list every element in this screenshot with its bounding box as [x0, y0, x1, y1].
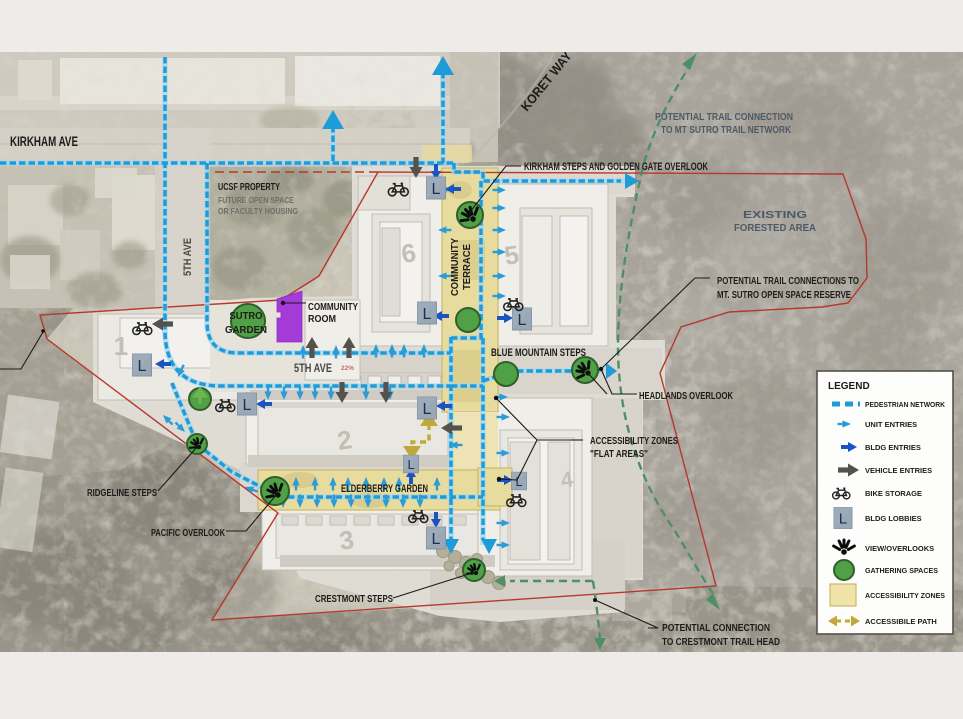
svg-text:UCSF PROPERTY: UCSF PROPERTY: [218, 181, 280, 193]
svg-text:HEADLANDS OVERLOOK: HEADLANDS OVERLOOK: [639, 390, 733, 402]
svg-text:BIKE STORAGE: BIKE STORAGE: [865, 489, 922, 498]
svg-text:OR FACULTY HOUSING: OR FACULTY HOUSING: [218, 206, 298, 216]
svg-text:GARDEN: GARDEN: [225, 324, 267, 336]
svg-text:KIRKHAM AVE: KIRKHAM AVE: [10, 134, 78, 149]
svg-text:POTENTIAL TRAIL CONNECTIONS TO: POTENTIAL TRAIL CONNECTIONS TO: [717, 275, 859, 287]
svg-text:GATHERING SPACES: GATHERING SPACES: [865, 566, 938, 575]
svg-text:MT. SUTRO OPEN SPACE RESERVE: MT. SUTRO OPEN SPACE RESERVE: [717, 289, 851, 301]
svg-text:1: 1: [114, 331, 128, 361]
svg-text:UNIT ENTRIES: UNIT ENTRIES: [865, 420, 917, 429]
svg-text:POTENTIAL CONNECTION: POTENTIAL CONNECTION: [662, 623, 770, 634]
svg-text:5TH AVE: 5TH AVE: [182, 238, 194, 276]
svg-text:VIEW/OVERLOOKS: VIEW/OVERLOOKS: [865, 544, 934, 553]
svg-text:FUTURE OPEN SPACE: FUTURE OPEN SPACE: [218, 195, 294, 205]
svg-text:ELDERBERRY GARDEN: ELDERBERRY GARDEN: [341, 483, 428, 495]
svg-text:5TH AVE: 5TH AVE: [294, 361, 332, 375]
svg-text:BLUE MOUNTAIN STEPS: BLUE MOUNTAIN STEPS: [491, 347, 586, 359]
svg-text:KIRKHAM STEPS AND GOLDEN GATE: KIRKHAM STEPS AND GOLDEN GATE OVERLOOK: [524, 161, 708, 173]
svg-text:CRESTMONT STEPS: CRESTMONT STEPS: [315, 593, 393, 605]
svg-text:BLDG ENTRIES: BLDG ENTRIES: [865, 443, 921, 452]
svg-text:SUTRO: SUTRO: [230, 310, 263, 322]
svg-text:LEGEND: LEGEND: [828, 381, 870, 392]
svg-text:TO CRESTMONT TRAIL HEAD: TO CRESTMONT TRAIL HEAD: [662, 637, 780, 648]
svg-text:COMMUNITY: COMMUNITY: [450, 238, 461, 296]
svg-text:BLDG LOBBIES: BLDG LOBBIES: [865, 514, 922, 523]
svg-text:RIDGELINE STEPS: RIDGELINE STEPS: [87, 487, 157, 499]
svg-text:"FLAT AREAS": "FLAT AREAS": [590, 448, 648, 460]
svg-text:TO MT SUTRO TRAIL NETWORK: TO MT SUTRO TRAIL NETWORK: [661, 125, 792, 136]
svg-text:EXISTING: EXISTING: [743, 210, 807, 221]
svg-text:PEDESTRIAN NETWORK: PEDESTRIAN NETWORK: [865, 400, 946, 409]
svg-text:COMMUNITY: COMMUNITY: [308, 301, 358, 313]
svg-text:ROOM: ROOM: [308, 313, 336, 325]
svg-text:22%: 22%: [341, 365, 354, 372]
svg-text:PACIFIC OVERLOOK: PACIFIC OVERLOOK: [151, 527, 225, 539]
svg-text:POTENTIAL TRAIL CONNECTION: POTENTIAL TRAIL CONNECTION: [655, 112, 793, 123]
svg-text:TERRACE: TERRACE: [462, 244, 473, 290]
svg-text:ACCESSIBILITY ZONES: ACCESSIBILITY ZONES: [590, 435, 678, 447]
svg-text:FORESTED AREA: FORESTED AREA: [734, 223, 816, 234]
svg-text:ACCESSIBILE PATH: ACCESSIBILE PATH: [865, 617, 937, 626]
svg-text:VEHICLE ENTRIES: VEHICLE ENTRIES: [865, 466, 932, 475]
svg-text:ACCESSIBILITY ZONES: ACCESSIBILITY ZONES: [865, 591, 945, 600]
